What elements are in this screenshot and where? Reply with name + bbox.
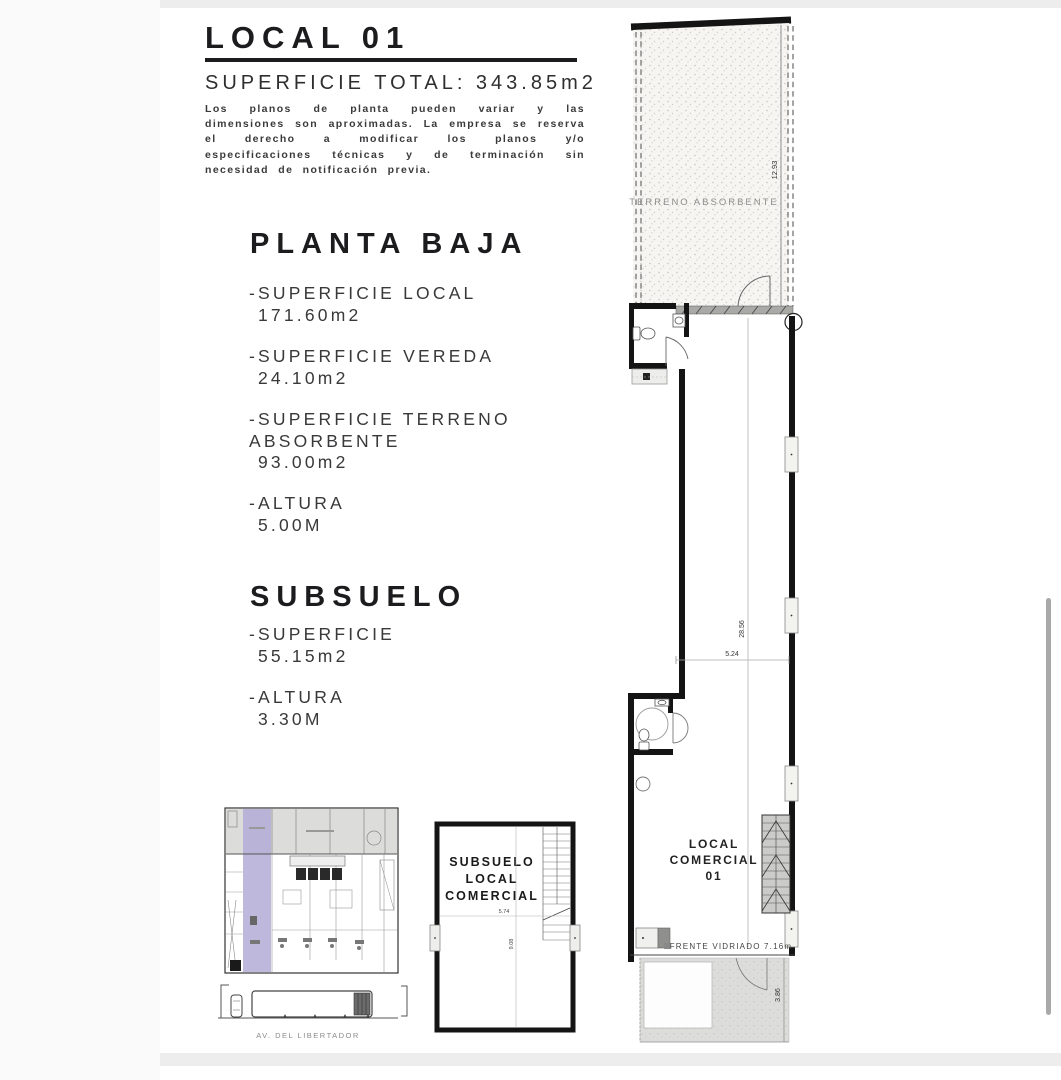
- planta-baja-heading: PLANTA BAJA: [250, 228, 528, 261]
- site-tiny-label: [249, 827, 265, 829]
- unit-label-line1: LOCAL: [689, 837, 739, 851]
- title-rule: [205, 58, 577, 62]
- site-dark-block: [250, 916, 257, 925]
- dim-interior-width: 5.24: [725, 651, 739, 658]
- bottom-separator-band: [160, 1053, 1061, 1066]
- wall-fixture-circle: [636, 777, 650, 791]
- upper-bathroom-door: [666, 337, 688, 366]
- sink-icon: [655, 699, 669, 706]
- sb-item-label: -SUPERFICIE: [249, 624, 569, 646]
- site-tiny-label: [306, 830, 334, 832]
- pb-item-label: -SUPERFICIE LOCAL: [249, 283, 569, 305]
- terreno-absorbente-area: [633, 23, 789, 308]
- subsuelo-dim-depth: 9.08: [509, 939, 515, 950]
- sink-icon: [673, 314, 685, 327]
- dividing-wall: [676, 306, 793, 314]
- total-area-subtitle: SUPERFICIE TOTAL: 343.85m2: [205, 72, 597, 95]
- subsuelo-label-line3: COMERCIAL: [445, 889, 539, 903]
- unit-label: LOCAL COMERCIAL 01: [670, 837, 759, 883]
- car-icon: [231, 995, 242, 1017]
- pb-item-value: 5.00M: [249, 515, 323, 536]
- pb-item-label: -SUPERFICIE VEREDA: [249, 346, 569, 368]
- sb-item-label: -ALTURA: [249, 687, 569, 709]
- pb-item-value: 24.10m2: [249, 368, 349, 389]
- dim-terreno-depth: 12.93: [770, 161, 779, 180]
- left-wall-upper: [679, 369, 685, 699]
- pb-item-value: 93.00m2: [249, 452, 349, 473]
- scrollbar-thumb[interactable]: [1046, 598, 1051, 1015]
- site-key-plan: AV. DEL LIBERTADOR: [208, 798, 420, 1050]
- subsuelo-heading: SUBSUELO: [250, 581, 467, 614]
- frente-vidriado-label: FRENTE VIDRIADO 7.16m: [670, 942, 793, 951]
- exterior-cabinet: [632, 369, 667, 384]
- sb-item-value: 55.15m2: [249, 646, 349, 667]
- disclaimer-text: Los planos de planta pueden variar y las…: [205, 102, 585, 178]
- top-separator-band: [160, 0, 1061, 8]
- subsuelo-dim-width: 5.74: [499, 909, 510, 915]
- staircase: [762, 815, 790, 913]
- toilet-icon: [639, 729, 649, 750]
- toilet-icon: [633, 327, 655, 340]
- street-label: AV. DEL LIBERTADOR: [256, 1031, 360, 1040]
- subsuelo-label-line2: LOCAL: [465, 872, 518, 886]
- terreno-label: TERRENO ABSORBENTE: [629, 197, 779, 208]
- pb-item-label: -ALTURA: [249, 493, 569, 515]
- dim-interior-depth: 28.56: [739, 620, 746, 638]
- pb-item-label: -SUPERFICIE TERRENO ABSORBENTE: [249, 409, 544, 453]
- subsuelo-floor-plan: SUBSUELO LOCAL COMERCIAL 5.74 9.08: [425, 810, 590, 1055]
- subsuelo-label-line1: SUBSUELO: [449, 855, 534, 869]
- pb-item-value: 171.60m2: [249, 305, 361, 326]
- local-01-highlight: [243, 809, 271, 972]
- unit-label-line3: 01: [706, 869, 723, 883]
- planta-baja-floor-plan: 12.93 TERRENO ABSORBENTE: [615, 5, 860, 1055]
- sb-item-value: 3.30M: [249, 709, 323, 730]
- page-title: LOCAL 01: [205, 20, 410, 56]
- dim-vereda-depth: 3.86: [775, 988, 782, 1002]
- building-frontage: [252, 991, 372, 1017]
- vereda-inset: [644, 962, 712, 1028]
- lower-bathroom-door: [673, 713, 688, 743]
- unit-label-line2: COMERCIAL: [670, 853, 759, 867]
- site-dark-block: [230, 960, 241, 971]
